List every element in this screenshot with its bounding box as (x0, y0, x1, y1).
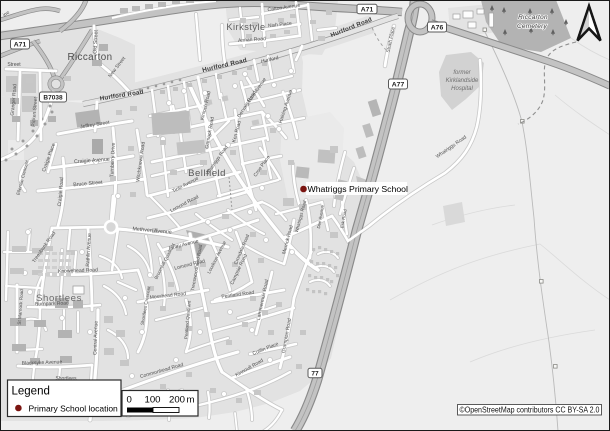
svg-text:A71: A71 (14, 42, 27, 49)
svg-text:Riccarton: Riccarton (518, 14, 548, 21)
svg-text:Kirkstyle: Kirkstyle (226, 22, 265, 32)
svg-text:100: 100 (144, 395, 160, 406)
svg-text:Legend: Legend (12, 386, 50, 398)
svg-text:m: m (187, 395, 195, 406)
svg-text:77: 77 (311, 371, 319, 378)
svg-text:Street: Street (7, 62, 21, 68)
svg-text:A77: A77 (392, 82, 405, 89)
svg-text:200: 200 (169, 395, 185, 406)
svg-text:©OpenStreetMap contributors CC: ©OpenStreetMap contributors CC BY-SA 2.0 (460, 406, 600, 415)
svg-text:Shortlees: Shortlees (36, 293, 82, 304)
svg-text:Cemetery: Cemetery (517, 23, 548, 30)
svg-text:B7038: B7038 (43, 95, 63, 102)
svg-text:A76: A76 (431, 25, 444, 32)
svg-text:Old Street: Old Street (92, 29, 99, 54)
svg-text:Central Avenue: Central Avenue (92, 321, 99, 356)
svg-text:Bellfield: Bellfield (188, 168, 226, 179)
svg-text:0: 0 (127, 395, 132, 406)
svg-text:Whatriggs Primary School: Whatriggs Primary School (308, 184, 408, 194)
svg-text:Primary School location: Primary School location (29, 404, 119, 414)
svg-text:former: former (453, 70, 471, 76)
svg-text:A71: A71 (361, 7, 374, 14)
svg-text:Kirklandside: Kirklandside (446, 78, 479, 84)
svg-text:Riccarton: Riccarton (68, 52, 113, 63)
svg-text:Hospital: Hospital (451, 86, 473, 92)
